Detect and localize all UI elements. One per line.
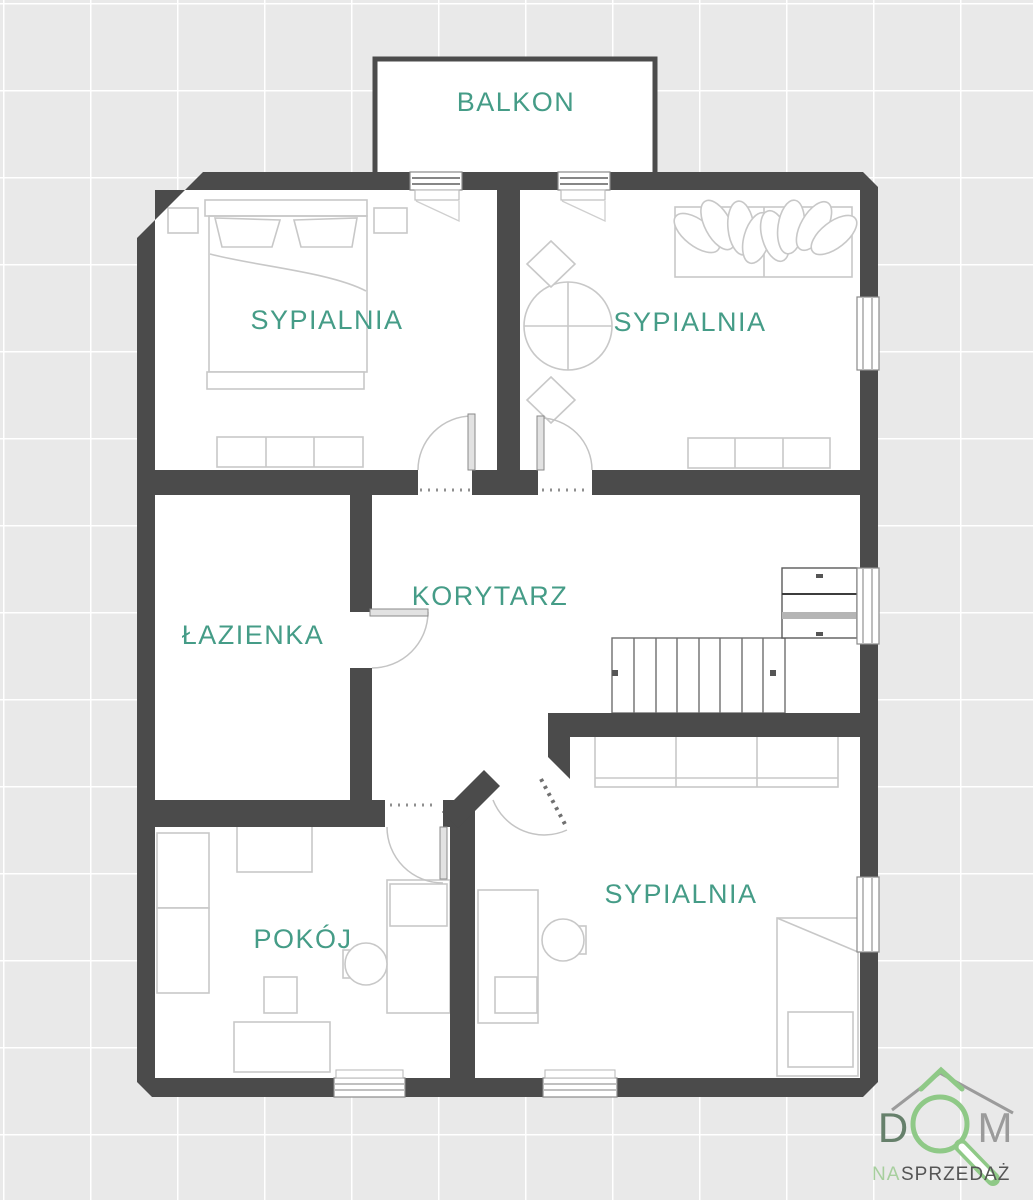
bench [217, 437, 363, 467]
window-pokoj [334, 1070, 405, 1097]
stair-marker [770, 670, 776, 676]
room-label-sypialnia-2: SYPIALNIA [613, 307, 766, 337]
sofa [595, 735, 838, 787]
window-bedroom3-bottom [543, 1070, 617, 1097]
stair-marker [612, 670, 618, 676]
room-label-pokoj: POKÓJ [253, 923, 352, 954]
cabinet-rail [782, 612, 857, 619]
balcony-slab [375, 59, 655, 183]
wall-bathroom [350, 668, 372, 800]
pillow [294, 218, 357, 247]
cabinet-handle [816, 574, 823, 578]
cabinet-handle [816, 632, 823, 636]
wardrobe [157, 833, 209, 908]
room-label-korytarz: KORYTARZ [412, 581, 569, 611]
chair [542, 919, 584, 961]
wall-horizontal [592, 470, 860, 495]
wall-bedroom-divider [497, 190, 520, 470]
room-label-balkon: BALKON [457, 87, 576, 117]
room-label-sypialnia-1: SYPIALNIA [250, 305, 403, 335]
window-hallway [857, 568, 879, 644]
hallway-cabinet [782, 568, 857, 638]
window-bedroom2 [857, 297, 879, 370]
shelf [237, 822, 312, 872]
cabinet-low [234, 1022, 330, 1072]
nightstand [374, 208, 407, 233]
window-bedroom3 [857, 877, 879, 952]
pillow [215, 218, 280, 247]
wall-horizontal [472, 470, 538, 495]
wall-under-stairs [548, 713, 860, 737]
floor-plan-canvas: BALKON [0, 0, 1033, 1200]
logo-letter-d: D [878, 1104, 910, 1151]
bed-footboard [207, 372, 364, 389]
bed-headboard [205, 200, 367, 216]
floor-plan-page: BALKON [0, 0, 1033, 1200]
wall-pokoj-divider [450, 810, 475, 1078]
bed-pillow [788, 1012, 853, 1067]
desk-drawer [495, 977, 537, 1013]
logo-subtitle-na: NA [872, 1164, 900, 1185]
wall-bathroom-bottom [137, 800, 385, 827]
stairs [612, 638, 785, 713]
side-table [264, 977, 297, 1013]
desk-top [390, 884, 447, 926]
wall-bathroom [350, 495, 372, 612]
dresser [688, 438, 830, 468]
room-label-lazienka: ŁAZIENKA [182, 620, 325, 650]
wall-horizontal [155, 470, 418, 495]
room-label-sypialnia-3: SYPIALNIA [604, 879, 757, 909]
logo-subtitle-sprzedaz: SPRZEDAŻ [901, 1164, 1010, 1185]
wardrobe [157, 908, 209, 993]
nightstand [168, 208, 198, 233]
logo-letter-m: M [978, 1104, 1015, 1151]
balcony: BALKON [375, 59, 655, 183]
